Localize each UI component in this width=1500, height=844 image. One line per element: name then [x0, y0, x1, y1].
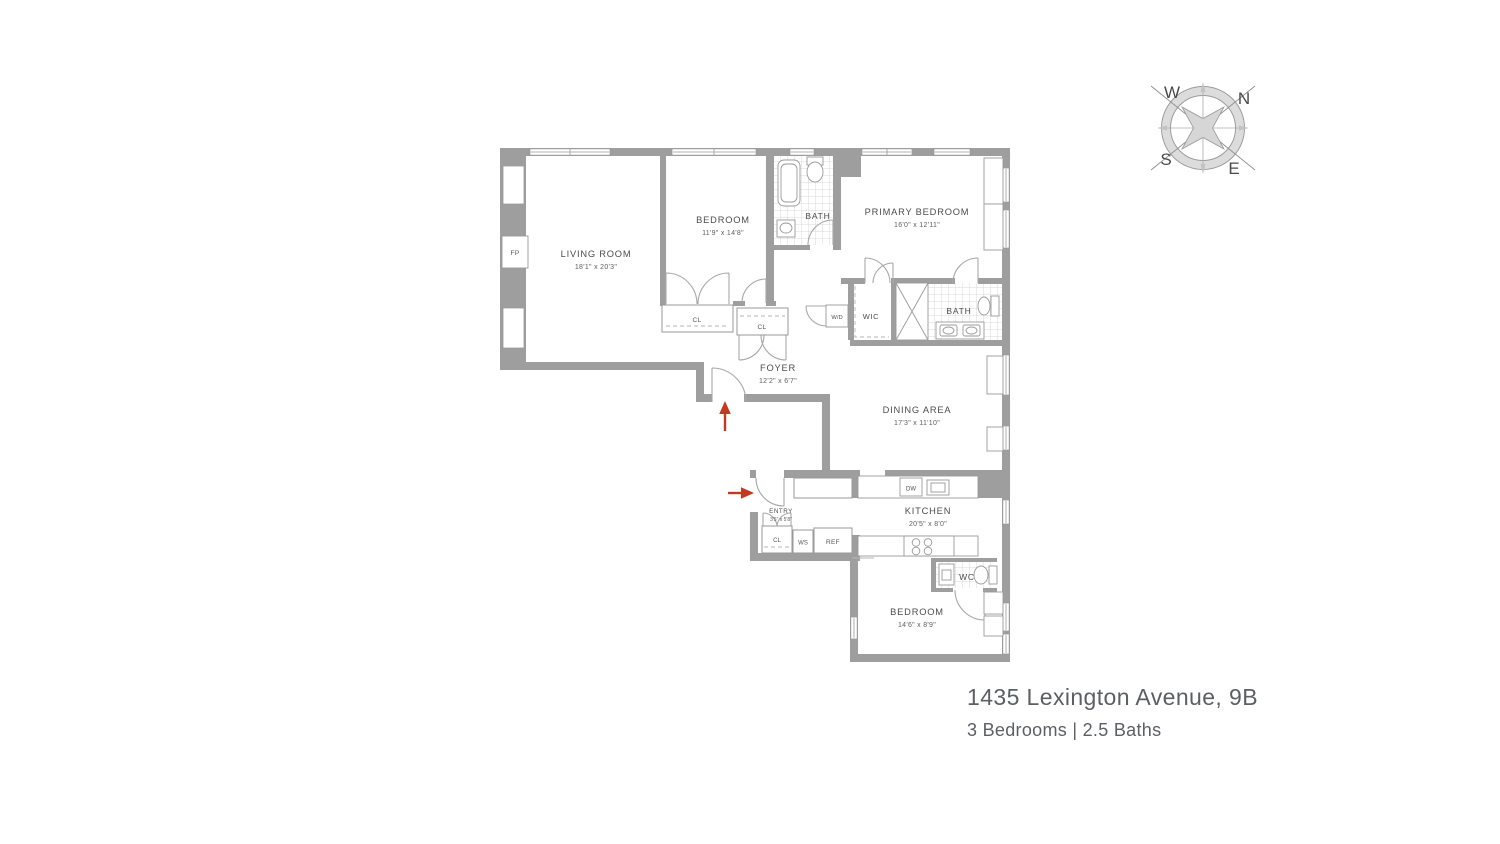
primary-bedroom-dims: 16'0" x 12'11"	[894, 222, 940, 229]
closet-entry-label: CL	[773, 538, 781, 544]
dining-area-dims: 17'3" x 11'10"	[894, 420, 940, 427]
kitchen-dims: 20'5" x 8'0"	[909, 521, 947, 528]
listing-details: 3 Bedrooms | 2.5 Baths	[967, 720, 1258, 741]
entry-label: ENTRY	[769, 508, 793, 515]
compass-north: N	[1238, 89, 1250, 108]
foyer-label: FOYER	[760, 363, 796, 373]
listing-title-block: 1435 Lexington Avenue, 9B 3 Bedrooms | 2…	[967, 684, 1258, 741]
living-room-dims: 18'1" x 20'3"	[575, 264, 618, 271]
compass-east: E	[1228, 159, 1239, 178]
entry-dims: 3'5" x 5'8"	[770, 517, 792, 523]
closet-bedroom-label: CL	[693, 317, 702, 324]
main-entrance-arrow	[719, 401, 731, 431]
closet-foyer-label: CL	[758, 324, 767, 331]
wic-label: WIC	[863, 312, 879, 321]
bedroom-top-label: BEDROOM	[696, 215, 750, 225]
entry-arrows	[719, 401, 754, 499]
wc-label: WC	[959, 572, 975, 582]
kitchen-label: KITCHEN	[905, 506, 951, 516]
bath-top-label: BATH	[805, 211, 830, 221]
bedroom-top-dims: 11'9" x 14'8"	[702, 230, 744, 237]
listing-address: 1435 Lexington Avenue, 9B	[967, 684, 1258, 712]
ref-label: REF	[826, 539, 840, 546]
compass-rose: W N S E	[1151, 82, 1255, 178]
dishwasher-label: DW	[906, 487, 916, 493]
primary-bedroom-label: PRIMARY BEDROOM	[865, 207, 970, 217]
bath-mid-label: BATH	[946, 306, 971, 316]
ws-label: WS	[798, 541, 808, 547]
fireplace: FP	[502, 236, 528, 268]
bedroom-bottom-label: BEDROOM	[890, 607, 944, 617]
compass-west: W	[1164, 83, 1180, 102]
fireplace-label: FP	[511, 250, 520, 257]
floorplan-page: FP	[0, 0, 1500, 844]
living-room-label: LIVING ROOM	[561, 249, 632, 259]
bedroom-bottom-dims: 14'6" x 8'9"	[898, 622, 936, 629]
dining-area-label: DINING AREA	[883, 405, 952, 415]
service-entrance-arrow	[728, 487, 754, 499]
washer-dryer-label: W/D	[831, 315, 842, 321]
apartment-plan: FP	[500, 148, 1010, 662]
compass-south: S	[1160, 150, 1171, 169]
foyer-dims: 12'2" x 6'7"	[759, 378, 797, 385]
floorplan-drawing: FP	[0, 0, 1500, 844]
